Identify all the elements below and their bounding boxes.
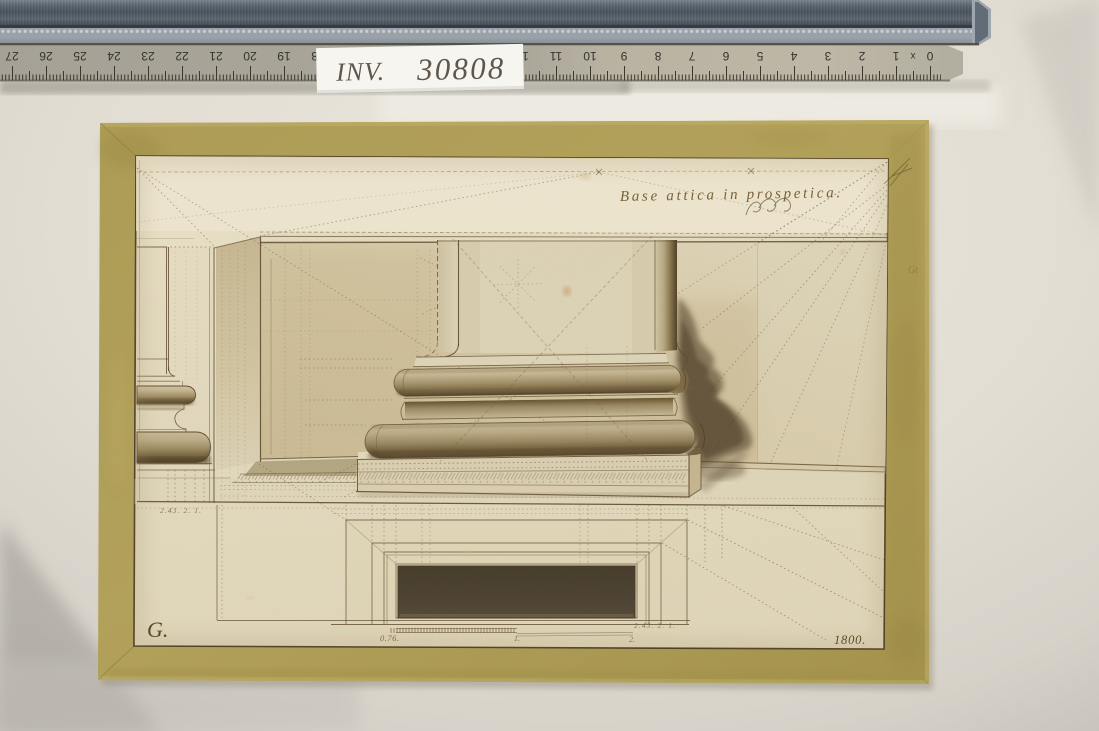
- svg-text:30808: 30808: [416, 50, 506, 87]
- svg-text:11: 11: [549, 49, 562, 63]
- svg-text:7: 7: [688, 49, 695, 63]
- svg-text:20: 20: [243, 49, 257, 63]
- svg-text:2: 2: [858, 49, 865, 63]
- svg-text:9: 9: [620, 49, 627, 63]
- svg-text:6: 6: [722, 49, 729, 63]
- svg-text:24: 24: [107, 49, 121, 63]
- svg-text:27: 27: [5, 49, 19, 63]
- svg-text:5: 5: [756, 49, 763, 63]
- svg-text:10: 10: [583, 49, 597, 63]
- svg-text:x: x: [911, 50, 916, 61]
- svg-text:21: 21: [209, 49, 223, 63]
- svg-text:Gt: Gt: [908, 265, 918, 276]
- svg-text:1: 1: [892, 49, 899, 63]
- svg-text:23: 23: [141, 49, 155, 63]
- svg-text:INV.: INV.: [335, 57, 386, 87]
- svg-text:3: 3: [824, 49, 831, 63]
- svg-text:26: 26: [39, 49, 53, 63]
- svg-text:8: 8: [654, 49, 661, 63]
- svg-text:0: 0: [926, 49, 933, 63]
- svg-text:19: 19: [277, 49, 291, 63]
- svg-text:22: 22: [175, 49, 189, 63]
- svg-text:25: 25: [73, 49, 87, 63]
- svg-text:4: 4: [790, 49, 797, 63]
